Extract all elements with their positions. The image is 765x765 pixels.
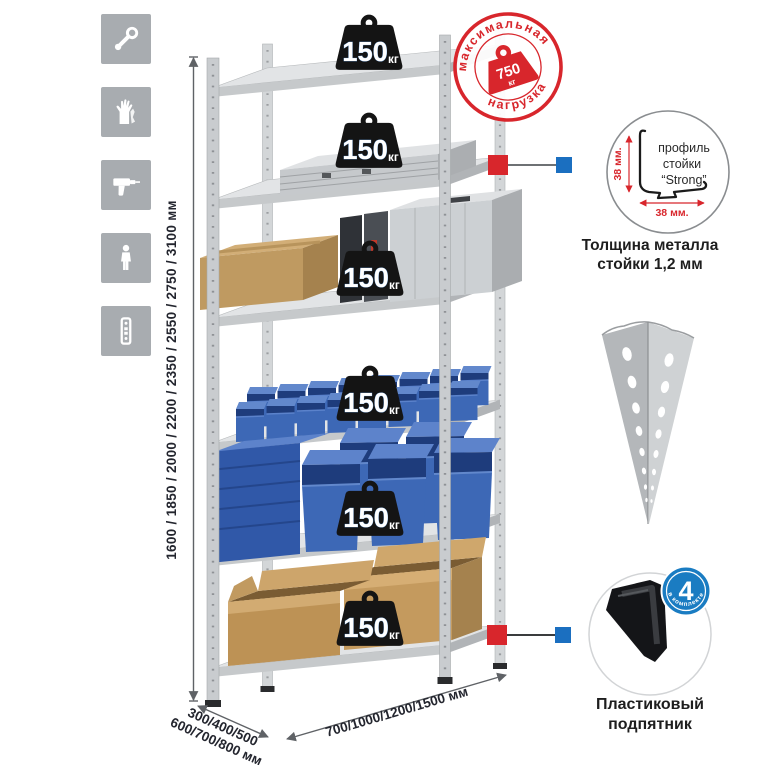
- foot-connector: [487, 625, 571, 645]
- max-load-stamp: максимальная нагрузка 750 кг: [441, 0, 575, 134]
- profile-dim-horizontal: 38 мм.: [655, 207, 688, 219]
- profile-label-2: стойки: [663, 157, 701, 171]
- gloves-icon: [101, 87, 151, 137]
- quantity-badge: 4 в комплекте: [662, 567, 711, 616]
- gloves-glyph: [110, 96, 142, 128]
- rack-post-icon: [101, 306, 151, 356]
- profile-dim-vertical: 38 мм.: [612, 147, 624, 180]
- load-badge-1: [336, 17, 403, 70]
- depth-dimension: 300/400/500 600/700/800 мм: [168, 700, 271, 765]
- foot-caption-2: подпятник: [608, 716, 693, 733]
- infographic-page: { "sidebar": { "icons": [ {"name": "wren…: [0, 0, 765, 765]
- drill-icon: [101, 160, 151, 210]
- height-dimension-label: 1600 / 1850 / 2000 / 2200 / 2350 / 2550 …: [164, 200, 179, 560]
- foot-callout: 4 в комплекте Пластиковый подпятник: [589, 567, 711, 734]
- profile-callout: 38 мм. 38 мм. профиль стойки “Strong” То…: [582, 111, 729, 273]
- profile-label-1: профиль: [658, 141, 710, 155]
- feature-icon-column: [101, 14, 151, 356]
- rack-post-glyph: [110, 315, 142, 347]
- height-dimension: 1600 / 1850 / 2000 / 2200 / 2350 / 2550 …: [164, 57, 198, 701]
- profile-caption-2: стойки 1,2 мм: [597, 256, 702, 273]
- wrench-glyph: [110, 23, 142, 55]
- wrench-icon: [101, 14, 151, 64]
- person-glyph: [110, 242, 142, 274]
- foot-caption-1: Пластиковый: [596, 696, 704, 713]
- metal-case: [390, 189, 522, 302]
- profile-caption-1: Толщина металла: [582, 237, 719, 254]
- drill-glyph: [110, 169, 142, 201]
- load-badge-2: [336, 115, 403, 168]
- profile-connector: [488, 155, 572, 175]
- angle-post-image: [602, 322, 694, 524]
- person-icon: [101, 233, 151, 283]
- profile-label-3: “Strong”: [661, 173, 706, 187]
- width-dimension: 700/1000/1200/1500 мм: [287, 675, 506, 740]
- width-dimension-label: 700/1000/1200/1500 мм: [324, 684, 470, 740]
